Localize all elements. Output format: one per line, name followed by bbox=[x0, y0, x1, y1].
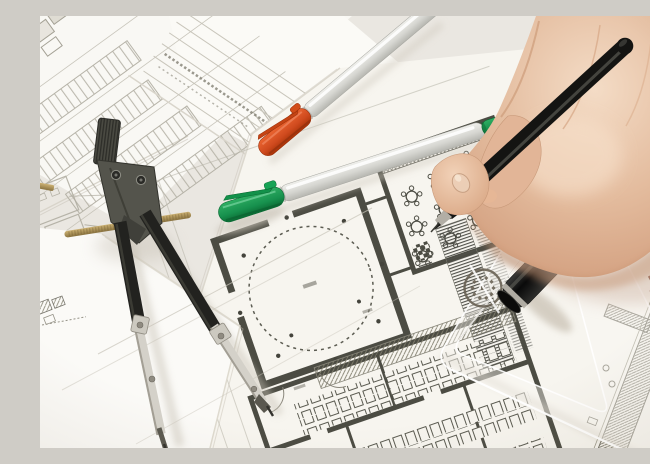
photo-canvas: Close-up photo of an architect's desk: a… bbox=[40, 16, 650, 448]
vignette-overlay bbox=[40, 16, 650, 448]
photo-architect-workspace: Close-up photo of an architect's desk: a… bbox=[40, 16, 650, 448]
